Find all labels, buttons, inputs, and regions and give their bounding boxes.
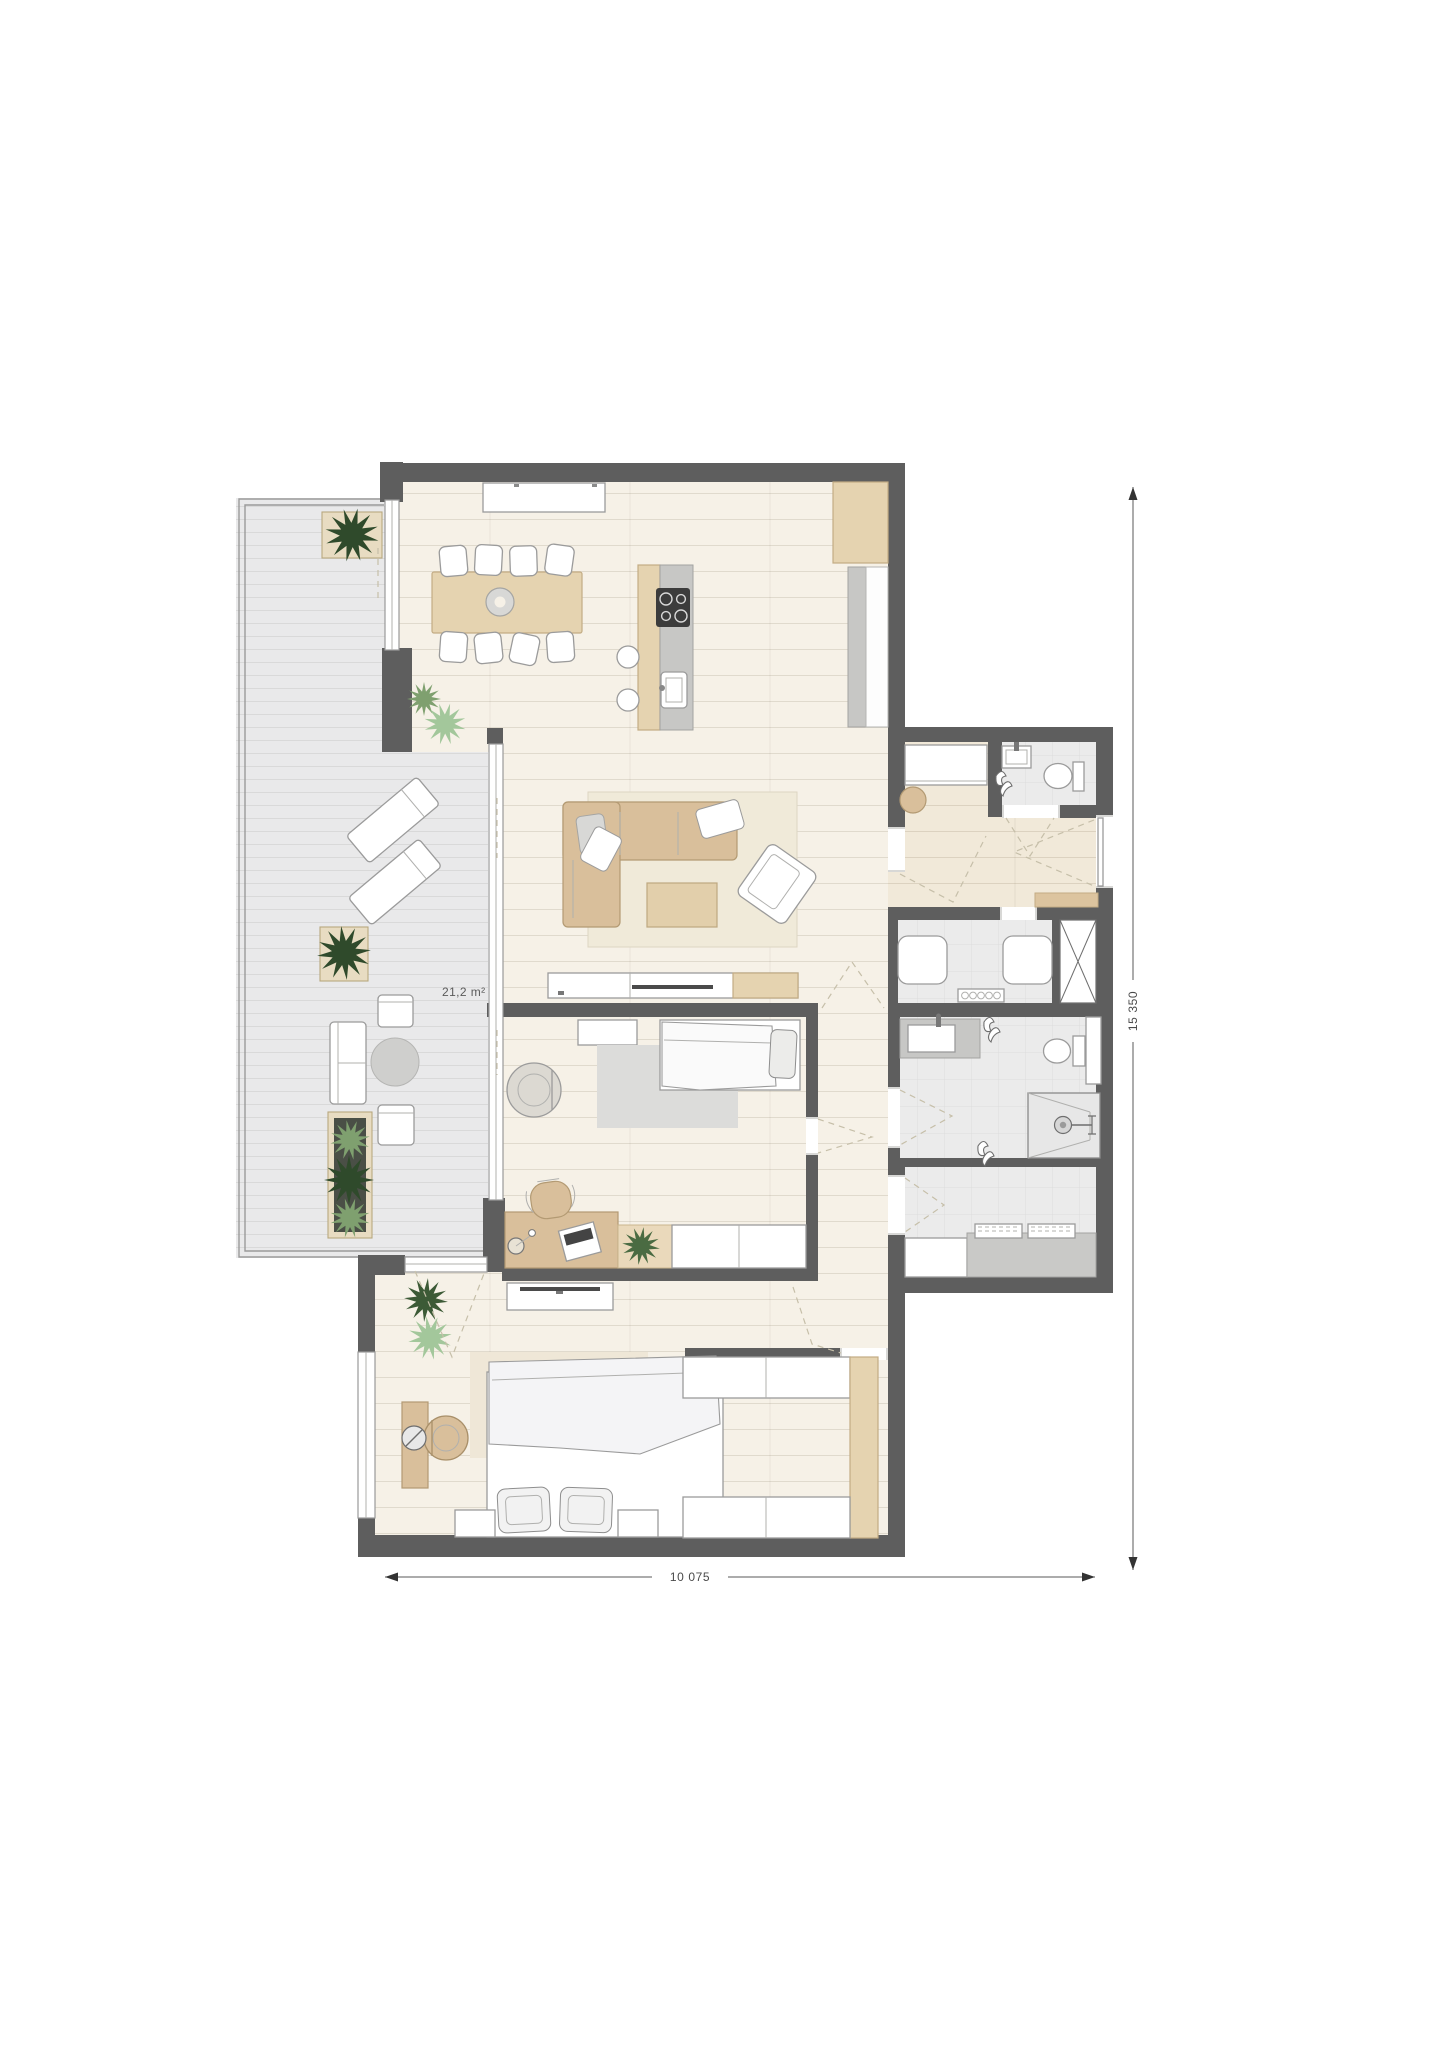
bench (618, 1510, 658, 1537)
front-door (1096, 815, 1113, 888)
wall-utility-left-upper (888, 1167, 905, 1175)
shower (1028, 1093, 1100, 1158)
dimension-height-label: 15 350 (1126, 991, 1140, 1031)
wall-shaft-divider (1052, 915, 1060, 1003)
wall-bathroom-bottom (888, 1158, 1101, 1167)
dimension-height: 15 350 (1126, 487, 1140, 1570)
wall-bedroom2-left-lower (358, 1518, 375, 1557)
wall-living-bedroom1 (487, 1003, 818, 1017)
utility-grille (975, 1224, 1022, 1238)
wall-balcony-step (382, 648, 412, 752)
wall-utility-left-lower (888, 1235, 905, 1277)
door-bathroom (888, 1087, 900, 1148)
wall-right-upper (888, 482, 905, 827)
wc-toilet (1044, 762, 1084, 791)
arrow-down-icon (1129, 1557, 1138, 1570)
arrow-right-icon (1082, 1573, 1095, 1582)
vent-grille (958, 989, 1004, 1002)
tv-icon (632, 985, 713, 989)
tv-console (507, 1283, 613, 1310)
dresser (578, 1020, 637, 1045)
wall-bedroom1-right-upper (806, 1013, 818, 1117)
bath-shelf (1086, 1017, 1101, 1084)
door-living-hall (888, 827, 905, 872)
dimension-width: 10 075 (385, 1570, 1095, 1584)
door-utility (888, 1175, 905, 1235)
table-centerpiece-hole (495, 597, 506, 608)
wardrobe (683, 1357, 850, 1398)
single-bed (660, 1020, 800, 1090)
bed-pillow (497, 1487, 551, 1534)
arrow-up-icon (1129, 487, 1138, 500)
arrow-left-icon (385, 1573, 398, 1582)
mouse-icon (529, 1230, 536, 1237)
wall-top (380, 463, 905, 482)
balcony-window-lower (489, 744, 503, 1200)
hall-cabinet (905, 745, 987, 785)
utility-appliance (905, 1238, 967, 1277)
pouf (900, 787, 926, 813)
door-wc (1002, 805, 1060, 818)
planter-long (324, 1112, 376, 1242)
bedroom1-sideboard (672, 1225, 806, 1268)
bedroom2-top-window (405, 1257, 487, 1272)
dimension-width-label: 10 075 (670, 1570, 710, 1584)
wall-bedroom2-top-left (358, 1255, 405, 1275)
dryer (1003, 936, 1052, 984)
dining-chair (474, 544, 503, 575)
wall-bedroom1-bottom (502, 1268, 818, 1281)
bed-pillow (559, 1487, 613, 1533)
dining-chair (439, 545, 469, 577)
doormat (1035, 893, 1098, 907)
bed-pillow (769, 1029, 797, 1078)
bench (455, 1510, 495, 1537)
dining-chair (546, 631, 575, 663)
bath-vanity (900, 1014, 980, 1059)
wardrobe (683, 1497, 850, 1538)
tall-cabinet (833, 482, 888, 563)
wc-sink (1002, 742, 1031, 768)
bar-stool (617, 689, 639, 711)
dining-chair (508, 632, 541, 667)
dining-chair (439, 631, 468, 663)
shaft (1060, 920, 1096, 1003)
sink-faucet (659, 685, 665, 691)
dining-chair (474, 632, 504, 665)
utility-grille (1028, 1224, 1075, 1238)
wall-bathroom-top (888, 1003, 1101, 1017)
counter-run-top (866, 567, 888, 727)
wall-right-lower (888, 1293, 905, 1557)
door-bedroom1 (806, 1117, 818, 1155)
bath-toilet (1044, 1036, 1086, 1066)
wall-top-left-notch (380, 462, 403, 502)
bedroom2-left-window (358, 1352, 375, 1518)
planter-mid (314, 923, 373, 982)
wall-glass-stub (487, 728, 503, 744)
wall-hall-top (900, 727, 1113, 742)
wall-laundry-left (888, 920, 898, 1003)
wall-laundry-top-a (888, 907, 1000, 920)
floor-plan-drawing: 21,2 m² 10 075 15 350 (0, 0, 1448, 2048)
washer (898, 936, 947, 984)
island-sink (661, 672, 687, 708)
wall-wc-bottom (1060, 805, 1096, 818)
balcony-armchair (378, 995, 413, 1027)
tv-icon (520, 1287, 600, 1291)
floor-plan-page: 21,2 m² 10 075 15 350 (0, 0, 1448, 2048)
balcony-sofa (330, 1022, 366, 1104)
round-armchair (507, 1063, 561, 1117)
front-door-leaf (1098, 818, 1103, 886)
wall-laundry-top-b (1037, 907, 1096, 920)
bar-stool (617, 646, 639, 668)
wall-bathroom-left-upper (888, 1017, 900, 1087)
dining-chair (509, 546, 537, 577)
wall-annex-bottom (888, 1277, 1113, 1293)
door-laundry (1000, 907, 1037, 920)
wardrobe-side-panel (850, 1357, 878, 1538)
tv-sideboard (548, 973, 798, 998)
desk (505, 1212, 618, 1268)
planter-top (320, 503, 384, 567)
dining-chair (544, 543, 575, 576)
utility-counter (967, 1233, 1096, 1277)
balcony-window-upper (385, 500, 399, 650)
balcony-round-rug (371, 1038, 419, 1086)
sideboard-top (483, 483, 605, 512)
coffee-table (647, 883, 717, 927)
balcony-armchair (378, 1105, 414, 1145)
wall-bedroom1-right-lower (806, 1155, 818, 1280)
vanity-chair (424, 1416, 468, 1460)
balcony-area-label: 21,2 m² (442, 985, 485, 999)
counter-run (848, 567, 866, 727)
